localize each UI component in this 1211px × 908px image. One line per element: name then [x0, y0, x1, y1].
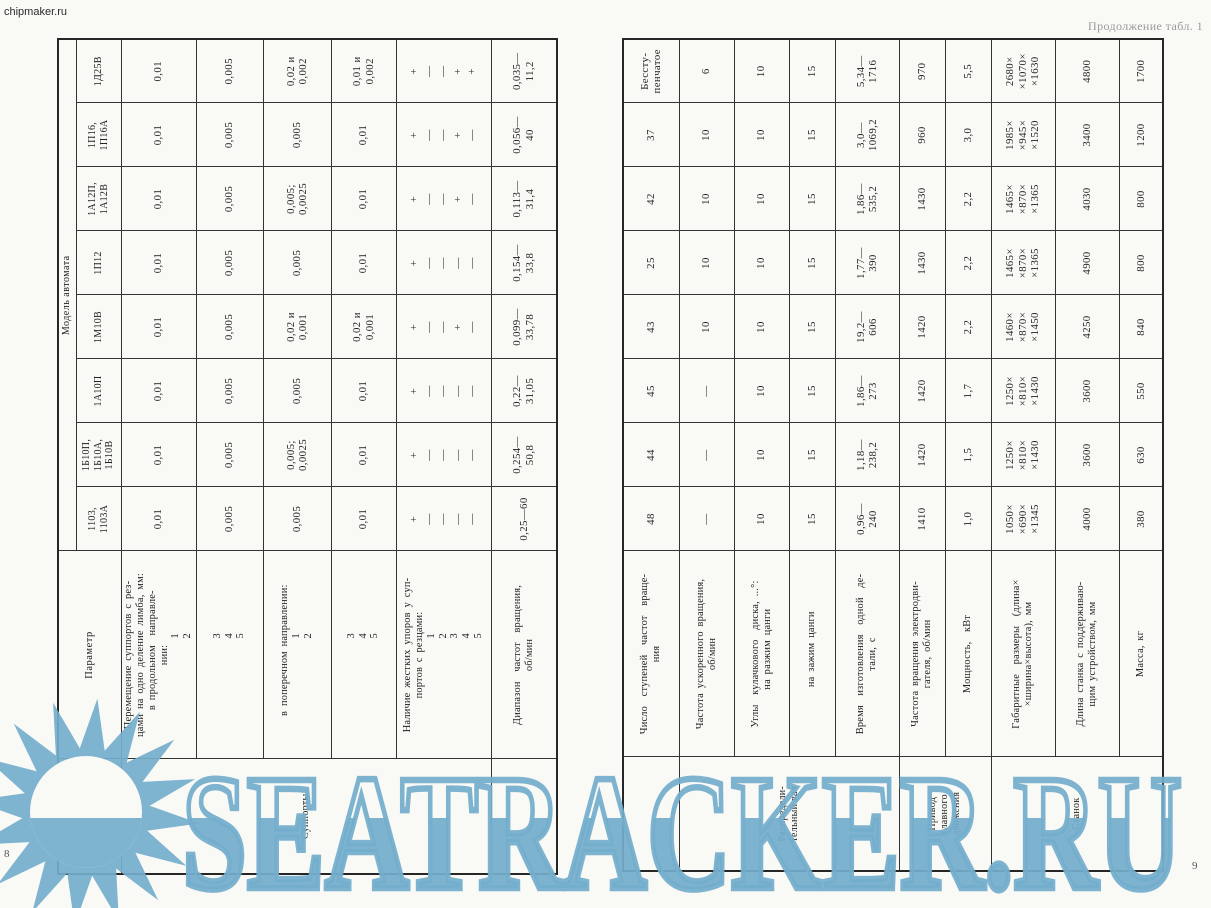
spec-value-cell: 10 — [734, 103, 789, 167]
right-page-rotated-table-container: Число ступеней частот враще- ния48444543… — [622, 38, 1163, 872]
spec-value-cell: 4030 — [1055, 167, 1119, 231]
model-name-header: 1Б10П, 1Б10А, 1Б10В — [76, 423, 121, 487]
spec-value-cell: Бессту- пенчатое — [623, 39, 679, 103]
spec-value-cell: 1985× ×945× ×1520 — [991, 103, 1055, 167]
model-group-header: Модель автомата — [58, 39, 76, 551]
object-group-label: Привод главного движения — [899, 757, 991, 871]
spec-value-cell: 3400 — [1055, 103, 1119, 167]
spec-value-cell: 2,2 — [945, 295, 991, 359]
spec-value-cell: 1250× ×810× ×1430 — [991, 423, 1055, 487]
spec-value-cell: 1465× ×870× ×1365 — [991, 231, 1055, 295]
spec-value-cell: 1250× ×810× ×1430 — [991, 359, 1055, 423]
spec-value-cell: — — [679, 359, 734, 423]
spec-value-cell: 10 — [734, 167, 789, 231]
parameter-name: в поперечном направлении: 1 2 — [263, 551, 331, 759]
parameter-name: на зажим цанги — [789, 551, 835, 757]
spec-value-cell: 45 — [623, 359, 679, 423]
spec-value-cell: 15 — [789, 39, 835, 103]
parameter-name: Наличие жестких упоров у суп- портов с р… — [396, 551, 491, 759]
spec-value-cell: 1420 — [899, 423, 945, 487]
spec-value-cell: + — — — — — [396, 359, 491, 423]
spec-value-cell: 0,005; 0,0025 — [263, 423, 331, 487]
spec-value-cell: 42 — [623, 167, 679, 231]
spec-value-cell: 0,01 — [121, 231, 196, 295]
spec-value-cell: 10 — [734, 231, 789, 295]
spec-value-cell: 10 — [679, 295, 734, 359]
spec-value-cell: + — — + — — [396, 295, 491, 359]
spec-value-cell: 15 — [789, 231, 835, 295]
spec-value-cell: 5,5 — [945, 39, 991, 103]
parameter-name: 3 4 5 — [196, 551, 263, 759]
spec-value-cell: 6 — [679, 39, 734, 103]
spec-value-cell: 0,154— 33,8 — [491, 231, 557, 295]
spec-value-cell: 10 — [679, 231, 734, 295]
spec-value-cell: 0,01 — [121, 359, 196, 423]
spec-value-cell: 1,0 — [945, 487, 991, 551]
page-number-left: 8 — [4, 848, 10, 860]
machine-specs-table-page9: Число ступеней частот враще- ния48444543… — [622, 38, 1164, 872]
model-name-header: 1А10П — [76, 359, 121, 423]
spec-value-cell: 1410 — [899, 487, 945, 551]
spec-value-cell: 10 — [734, 423, 789, 487]
spec-value-cell: 0,01 — [331, 231, 396, 295]
spec-value-cell: + — — + — — [396, 103, 491, 167]
parameter-name: Габаритные размеры (длина× ×ширина×высот… — [991, 551, 1055, 757]
spec-value-cell: 0,005 — [263, 103, 331, 167]
spec-value-cell: 0,02 и 0,001 — [263, 295, 331, 359]
spec-value-cell: 2680× ×1070× ×1630 — [991, 39, 1055, 103]
spec-value-cell: 0,01 — [331, 167, 396, 231]
spec-value-cell: + — — + + — [396, 39, 491, 103]
spec-value-cell: 0,005 — [263, 487, 331, 551]
parameter-name: 3 4 5 — [331, 551, 396, 759]
spec-value-cell: 0,22— 31,05 — [491, 359, 557, 423]
spec-value-cell: 0,01 — [121, 103, 196, 167]
spec-value-cell: 15 — [789, 295, 835, 359]
parameter-name: Частота ускоренного вращения, об/мин — [679, 551, 734, 757]
spec-value-cell: 37 — [623, 103, 679, 167]
spec-value-cell: 10 — [734, 359, 789, 423]
spec-value-cell: 15 — [789, 423, 835, 487]
spec-value-cell: 0,005 — [196, 167, 263, 231]
parameter-name: Частота вращения электродви- гателя, об/… — [899, 551, 945, 757]
spec-value-cell: 10 — [679, 167, 734, 231]
spec-value-cell: 4250 — [1055, 295, 1119, 359]
model-name-header: 1Д25В — [76, 39, 121, 103]
table-continuation-caption: Продолжение табл. 1 — [1088, 19, 1203, 34]
spec-value-cell: 3,0— 1069,2 — [835, 103, 899, 167]
spec-value-cell: 970 — [899, 39, 945, 103]
spec-value-cell: 2,2 — [945, 231, 991, 295]
spec-value-cell: + — — — — — [396, 423, 491, 487]
spec-value-cell: 0,005 — [196, 231, 263, 295]
spec-value-cell: 44 — [623, 423, 679, 487]
page-number-right: 9 — [1192, 860, 1198, 872]
spec-value-cell: 630 — [1119, 423, 1163, 487]
spec-value-cell: 1700 — [1119, 39, 1163, 103]
spec-value-cell: + — — + — — [396, 167, 491, 231]
spec-value-cell: 0,96— 240 — [835, 487, 899, 551]
spec-value-cell: 960 — [899, 103, 945, 167]
object-column-header: Объект — [58, 759, 121, 874]
spec-value-cell: 5,34— 1716 — [835, 39, 899, 103]
spec-value-cell: 800 — [1119, 167, 1163, 231]
spec-value-cell: 380 — [1119, 487, 1163, 551]
spec-value-cell: 1,86— 273 — [835, 359, 899, 423]
parameter-name: Диапазон частот вращения, об/мин — [491, 551, 557, 759]
spec-value-cell: 0,005 — [263, 231, 331, 295]
spec-value-cell: 3,0 — [945, 103, 991, 167]
spec-value-cell: 1465× ×870× ×1365 — [991, 167, 1055, 231]
parameter-name: Время изготовления одной де- тали, с — [835, 551, 899, 757]
spec-value-cell: — — [679, 487, 734, 551]
scanned-book-spread: chipmaker.ru Продолжение табл. 1 ОбъектП… — [0, 0, 1211, 908]
object-group-label — [623, 757, 679, 871]
parameter-name: Масса, кг — [1119, 551, 1163, 757]
spec-value-cell: 0,02 и 0,001 — [331, 295, 396, 359]
spec-value-cell: 1460× ×870× ×1450 — [991, 295, 1055, 359]
spec-value-cell: 0,099— 33,78 — [491, 295, 557, 359]
parameter-column-header: Параметр — [58, 551, 121, 759]
parameter-name: Перемещение суппортов с рез- цами на одн… — [121, 551, 196, 759]
spec-value-cell: 1430 — [899, 167, 945, 231]
spec-value-cell: 10 — [734, 487, 789, 551]
spec-value-cell: 0,005; 0,0025 — [263, 167, 331, 231]
spec-value-cell: 4900 — [1055, 231, 1119, 295]
spec-value-cell: + — — — — — [396, 487, 491, 551]
machine-specs-table-page8: ОбъектПараметрМодель автомата1103, 1103А… — [57, 38, 558, 875]
parameter-name: Мощность, кВт — [945, 551, 991, 757]
parameter-name: Длина станка с поддерживаю- щим устройст… — [1055, 551, 1119, 757]
spec-value-cell: + — — — — — [396, 231, 491, 295]
spec-value-cell: 15 — [789, 487, 835, 551]
spec-value-cell: 0,035— 11,2 — [491, 39, 557, 103]
spec-value-cell: 2,2 — [945, 167, 991, 231]
spec-value-cell: 15 — [789, 359, 835, 423]
spec-value-cell: 0,01 — [121, 39, 196, 103]
spec-value-cell: 1430 — [899, 231, 945, 295]
spec-value-cell: 1,86— 535,2 — [835, 167, 899, 231]
model-name-header: 1П16, 1П16А — [76, 103, 121, 167]
spec-value-cell: 25 — [623, 231, 679, 295]
object-group-label: Станок — [991, 757, 1163, 871]
spec-value-cell: 10 — [679, 103, 734, 167]
spec-value-cell: 0,01 и 0,002 — [331, 39, 396, 103]
spec-value-cell: 0,005 — [263, 359, 331, 423]
spec-value-cell: 19,2— 606 — [835, 295, 899, 359]
spec-value-cell: 0,254— 50,8 — [491, 423, 557, 487]
spec-value-cell: 10 — [734, 295, 789, 359]
spec-value-cell: 1420 — [899, 359, 945, 423]
spec-value-cell: 0,005 — [196, 423, 263, 487]
spec-value-cell: 4000 — [1055, 487, 1119, 551]
object-group-label — [491, 759, 557, 874]
spec-value-cell: 0,01 — [121, 423, 196, 487]
spec-value-cell: 43 — [623, 295, 679, 359]
spec-value-cell: 0,01 — [121, 295, 196, 359]
spec-value-cell: 0,25—60 — [491, 487, 557, 551]
model-name-header: 1А12П, 1А12В — [76, 167, 121, 231]
spec-value-cell: 4800 — [1055, 39, 1119, 103]
spec-value-cell: 10 — [734, 39, 789, 103]
spec-value-cell: 3600 — [1055, 359, 1119, 423]
spec-value-cell: 550 — [1119, 359, 1163, 423]
spec-value-cell: 15 — [789, 103, 835, 167]
spec-value-cell: 0,02 и 0,002 — [263, 39, 331, 103]
spec-value-cell: 1050× ×690× ×1345 — [991, 487, 1055, 551]
spec-value-cell: 48 — [623, 487, 679, 551]
spec-value-cell: 0,005 — [196, 103, 263, 167]
parameter-name: Углы кулачкового диска, ...°: на разжим … — [734, 551, 789, 757]
spec-value-cell: — — [679, 423, 734, 487]
spec-value-cell: 0,005 — [196, 295, 263, 359]
spec-value-cell: 0,01 — [121, 487, 196, 551]
spec-value-cell: 840 — [1119, 295, 1163, 359]
object-group-label: Распредели- тельный вал — [679, 757, 899, 871]
model-name-header: 1103, 1103А — [76, 487, 121, 551]
spec-value-cell: 0,01 — [121, 167, 196, 231]
spec-value-cell: 1,7 — [945, 359, 991, 423]
spec-value-cell: 0,01 — [331, 487, 396, 551]
model-name-header: 1П12 — [76, 231, 121, 295]
spec-value-cell: 0,113— 31,4 — [491, 167, 557, 231]
spec-value-cell: 15 — [789, 167, 835, 231]
spec-value-cell: 1,77— 390 — [835, 231, 899, 295]
object-group-label: Суппорты — [121, 759, 491, 874]
spec-value-cell: 1,5 — [945, 423, 991, 487]
spec-value-cell: 0,005 — [196, 487, 263, 551]
spec-value-cell: 0,056— 40 — [491, 103, 557, 167]
spec-value-cell: 3600 — [1055, 423, 1119, 487]
spec-value-cell: 0,01 — [331, 359, 396, 423]
spec-value-cell: 0,005 — [196, 359, 263, 423]
spec-value-cell: 0,01 — [331, 103, 396, 167]
spec-value-cell: 1420 — [899, 295, 945, 359]
model-name-header: 1М10В — [76, 295, 121, 359]
spec-value-cell: 1200 — [1119, 103, 1163, 167]
spec-value-cell: 0,005 — [196, 39, 263, 103]
spec-value-cell: 800 — [1119, 231, 1163, 295]
parameter-name: Число ступеней частот враще- ния — [623, 551, 679, 757]
spec-value-cell: 1,18— 238,2 — [835, 423, 899, 487]
chipmaker-watermark-text: chipmaker.ru — [4, 6, 67, 18]
spec-value-cell: 0,01 — [331, 423, 396, 487]
left-page-rotated-table-container: ОбъектПараметрМодель автомата1103, 1103А… — [57, 38, 559, 875]
